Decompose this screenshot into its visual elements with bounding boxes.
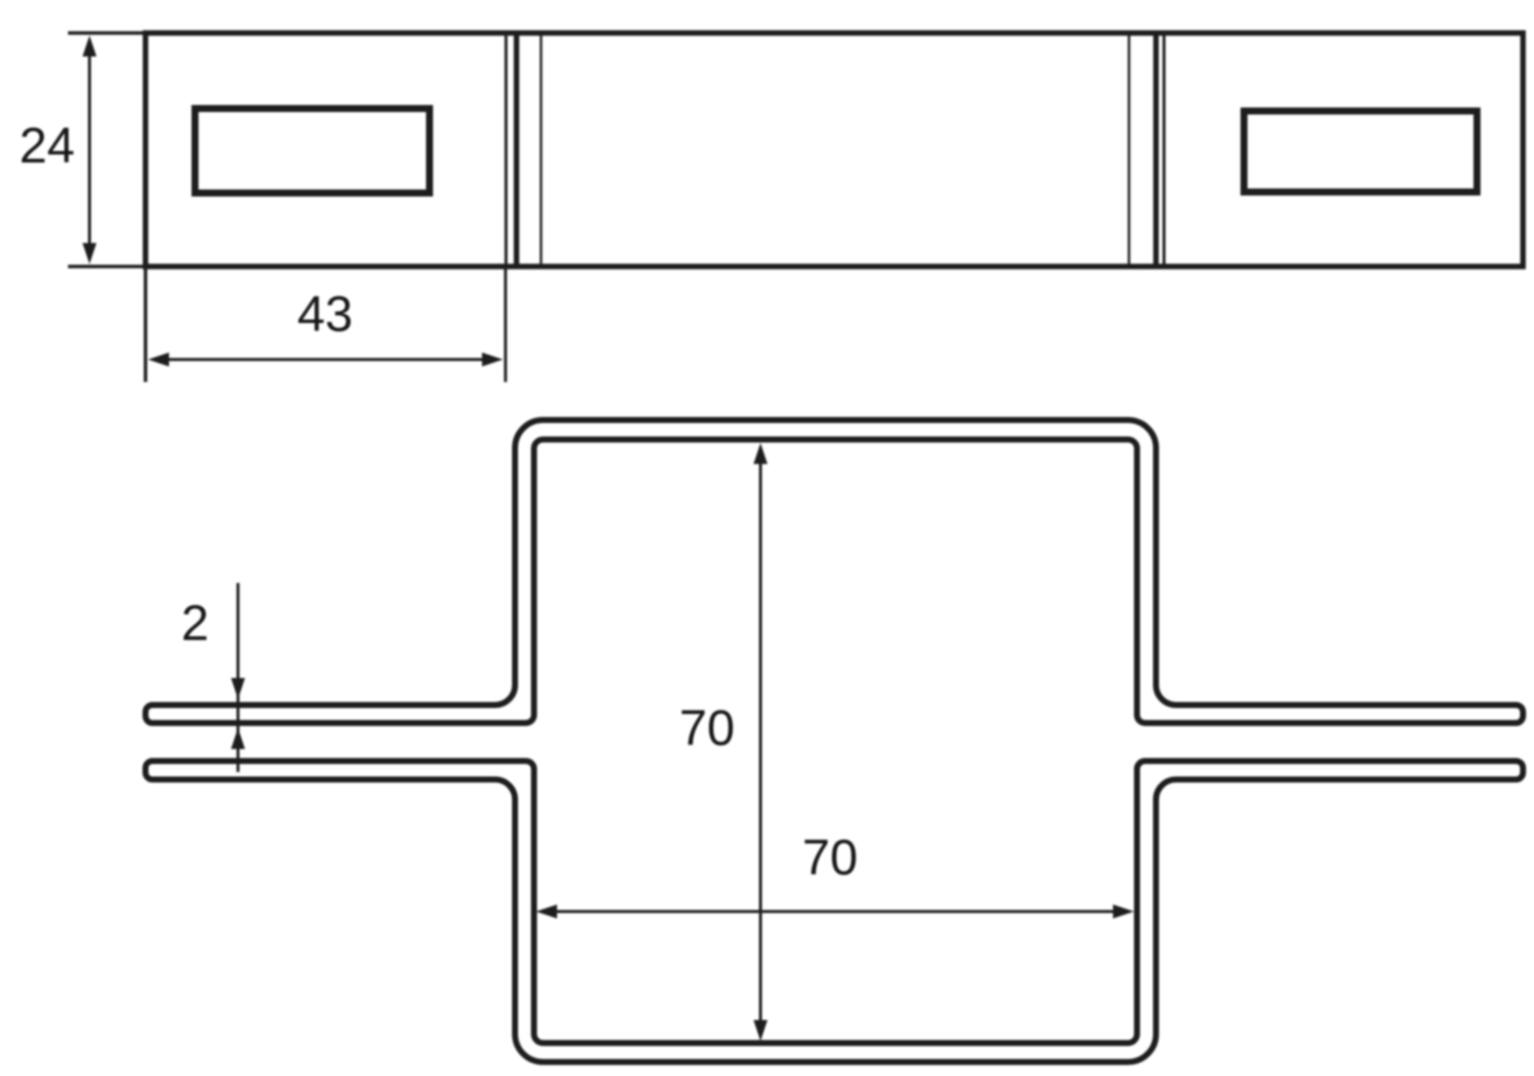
svg-text:43: 43 (297, 286, 353, 342)
svg-text:70: 70 (679, 700, 735, 756)
svg-text:70: 70 (802, 830, 858, 886)
svg-text:24: 24 (19, 118, 75, 174)
svg-text:2: 2 (181, 595, 209, 651)
